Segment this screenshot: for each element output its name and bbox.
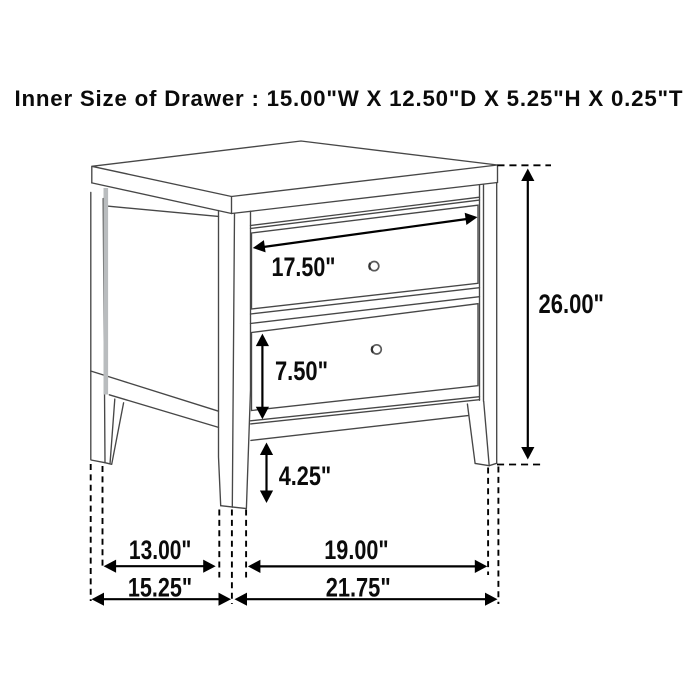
svg-text:21.75": 21.75" xyxy=(326,573,391,603)
svg-text:26.00": 26.00" xyxy=(539,289,605,319)
svg-text:Inner Size of Drawer : 15.00"W: Inner Size of Drawer : 15.00"W X 12.50"D… xyxy=(15,86,683,111)
svg-text:7.50": 7.50" xyxy=(275,356,328,386)
svg-text:17.50": 17.50" xyxy=(272,252,336,282)
svg-text:4.25": 4.25" xyxy=(279,461,332,491)
svg-text:15.25": 15.25" xyxy=(128,573,192,603)
svg-text:13.00": 13.00" xyxy=(129,535,192,565)
svg-text:19.00": 19.00" xyxy=(324,535,388,565)
